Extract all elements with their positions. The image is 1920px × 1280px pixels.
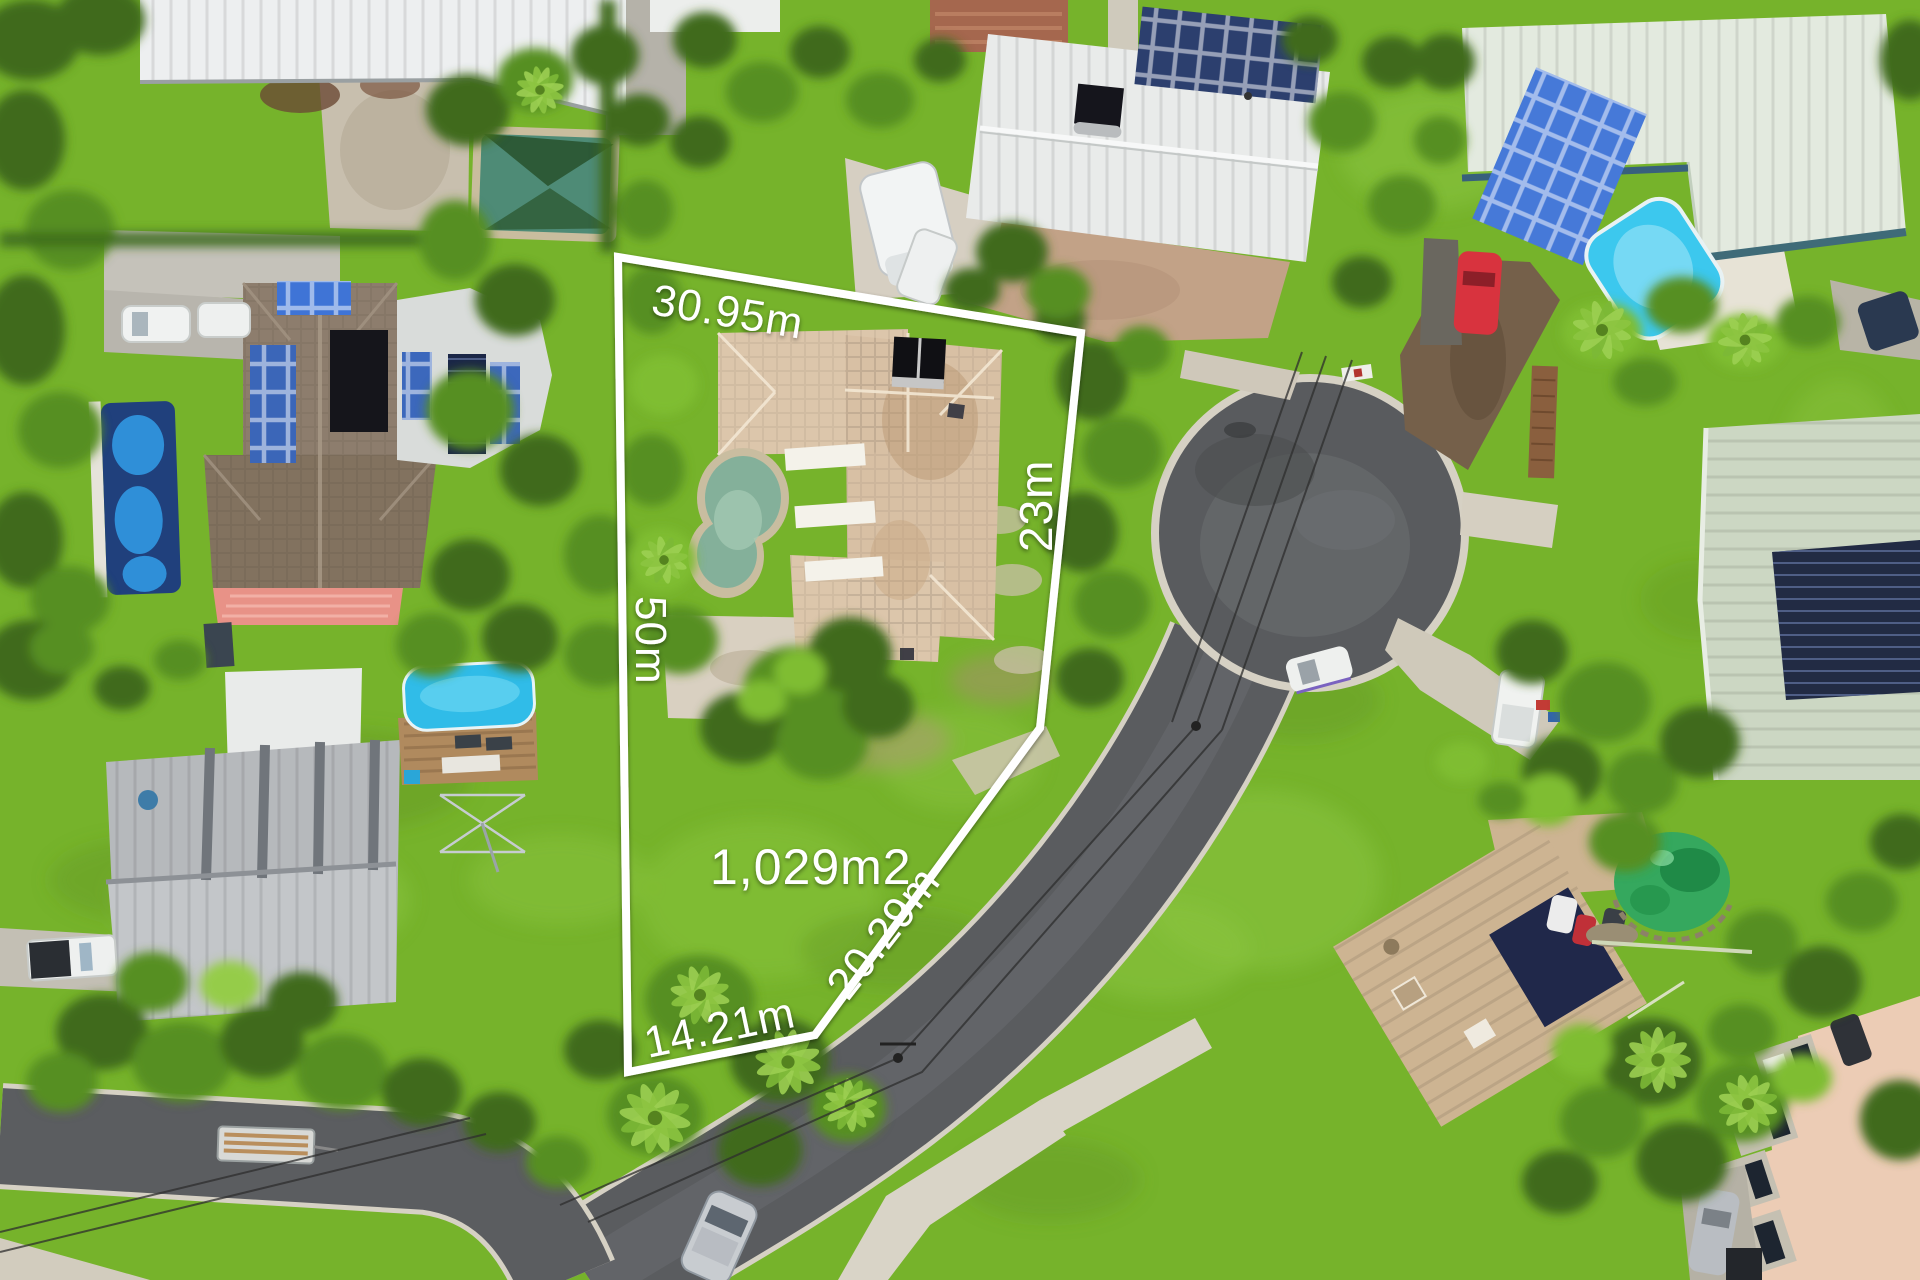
white-car [122,306,190,342]
blue-pool-deck [398,661,538,785]
lap-pool [89,399,182,598]
dimension-label-right: 23m [1010,460,1062,552]
white-car [198,303,250,337]
shade-sail-pool [470,125,620,242]
dimension-label-left: 50m [626,596,675,685]
red-car [1453,251,1503,336]
area-label: 1,029m2 [710,839,912,895]
white-ute [27,935,118,981]
aerial-photo: 30.95m 23m 50m 1,029m2 20.29m 14.21m [0,0,1920,1280]
solar-water-heater [1073,84,1126,139]
aerial-photo-canvas: 30.95m 23m 50m 1,029m2 20.29m 14.21m [0,0,1920,1280]
solar-water-heater [892,337,947,390]
timber-deck [1528,366,1558,479]
